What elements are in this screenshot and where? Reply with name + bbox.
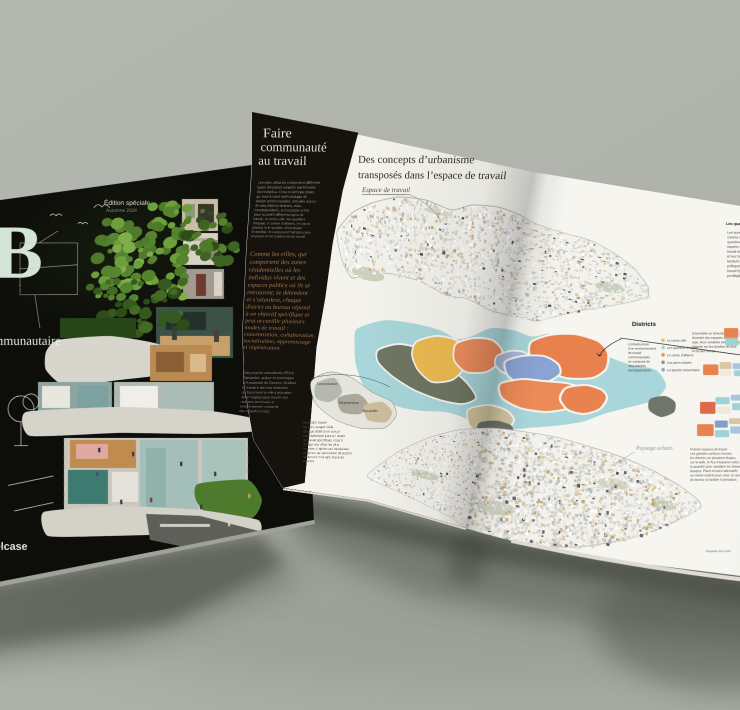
svg-text:Steelcase: Steelcase [0, 541, 28, 553]
svg-text:communautaire: communautaire [0, 333, 61, 348]
svg-text:B: B [0, 209, 43, 294]
svg-text:Édition spéciale: Édition spéciale [104, 198, 150, 207]
svg-text:Automne 2024: Automne 2024 [106, 208, 137, 214]
